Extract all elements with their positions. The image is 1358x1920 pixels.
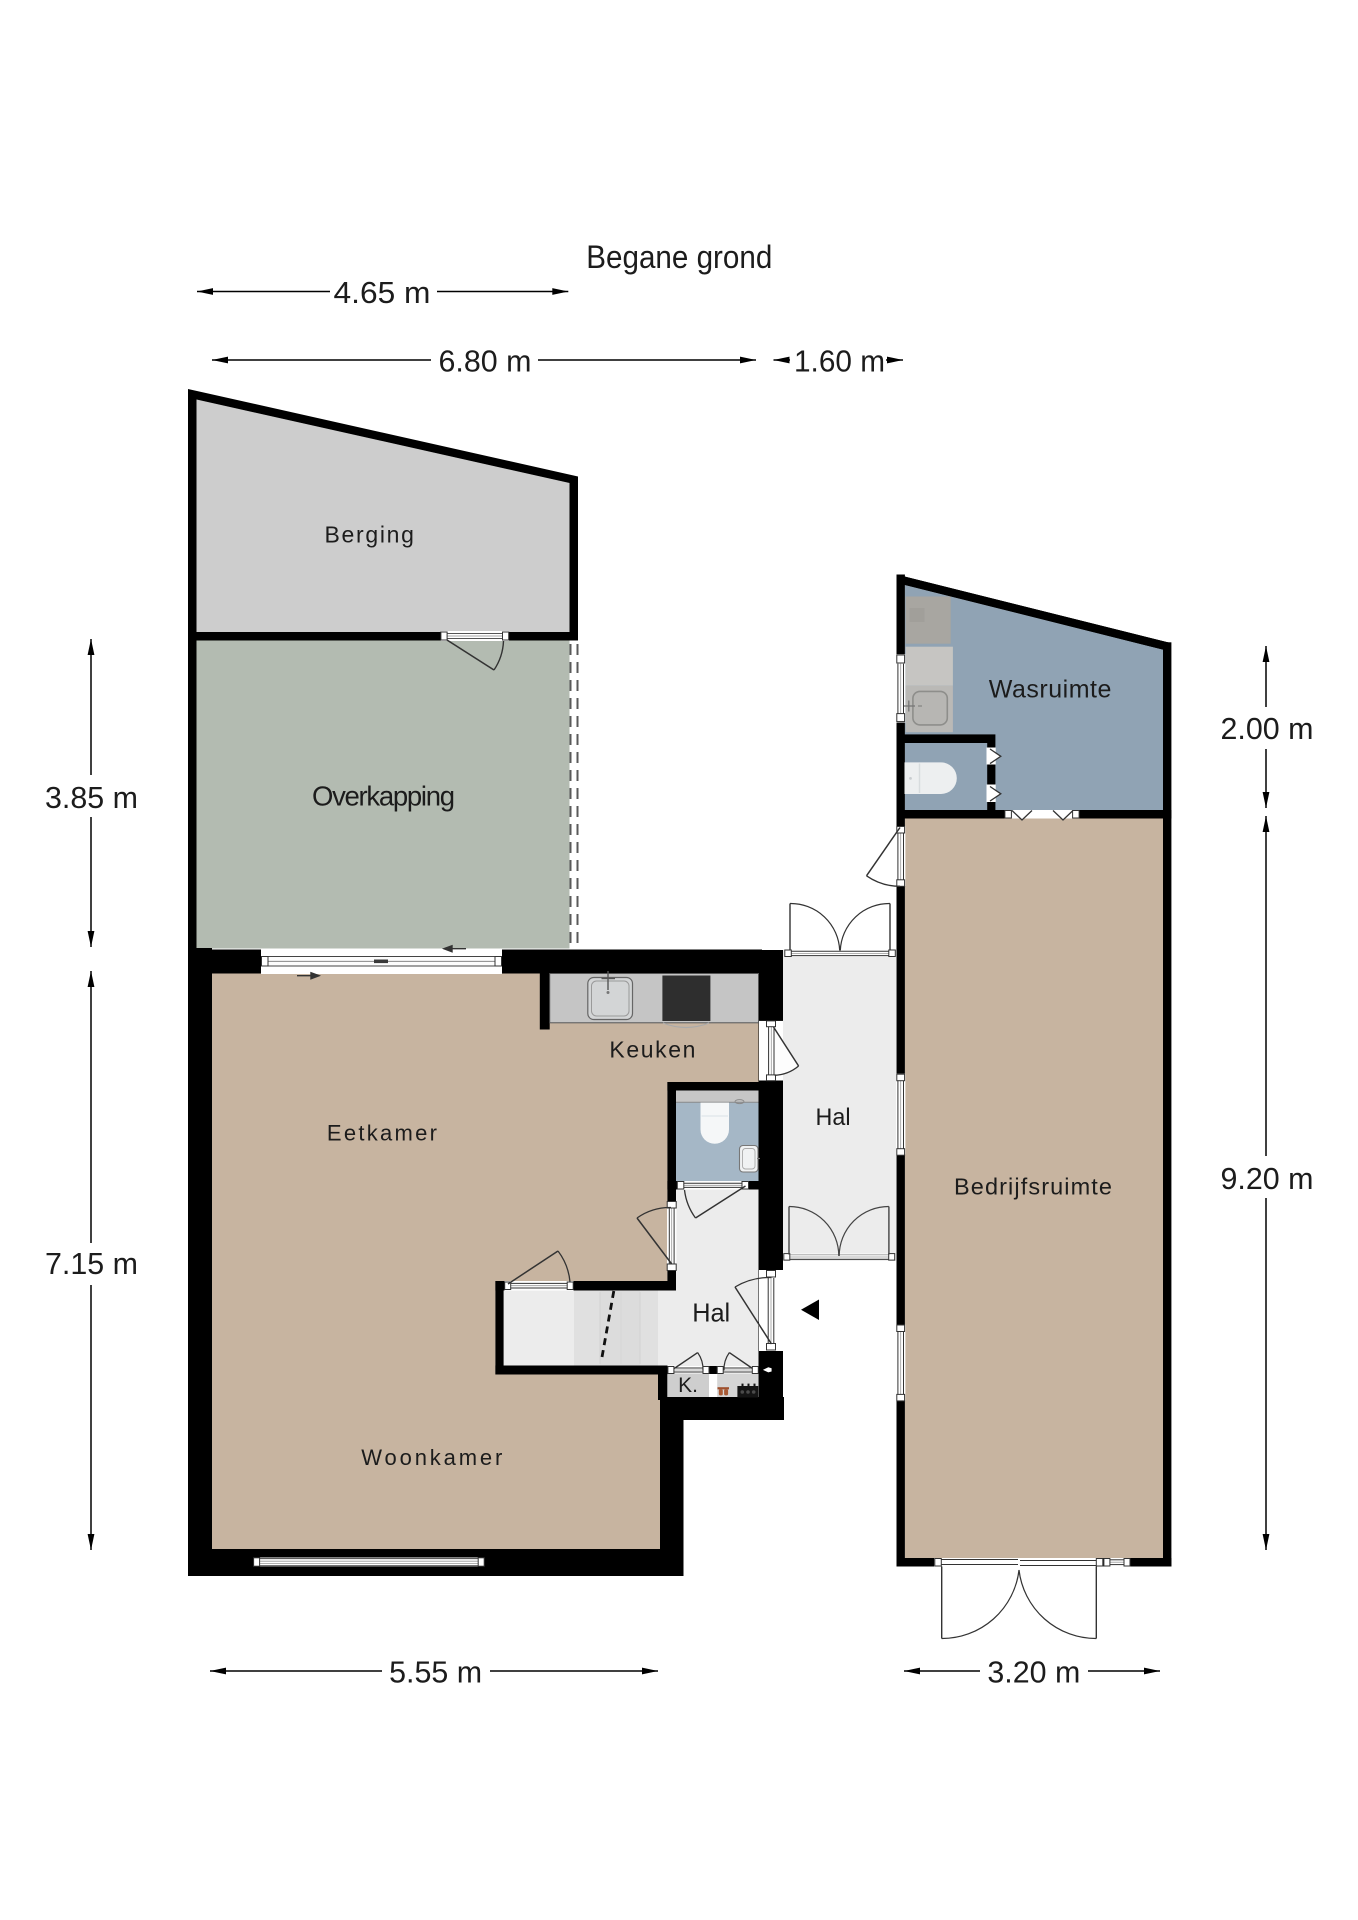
svg-text:1.60 m: 1.60 m [794,344,885,379]
svg-text:Berging: Berging [324,521,414,547]
svg-text:Hal: Hal [816,1104,851,1131]
svg-text:9.20 m: 9.20 m [1221,1161,1314,1196]
svg-text:Bedrijfsruimte: Bedrijfsruimte [954,1174,1112,1200]
svg-text:Keuken: Keuken [609,1037,695,1063]
svg-text:Overkapping: Overkapping [312,781,455,812]
svg-text:Eetkamer: Eetkamer [327,1121,437,1146]
svg-text:K.: K. [678,1374,698,1397]
svg-text:2.00 m: 2.00 m [1221,711,1314,746]
svg-text:3.20 m: 3.20 m [987,1655,1080,1690]
svg-text:3.85 m: 3.85 m [45,780,138,815]
svg-text:4.65 m: 4.65 m [334,275,431,310]
svg-text:6.80 m: 6.80 m [439,344,532,379]
svg-text:5.55 m: 5.55 m [389,1655,482,1690]
svg-text:Hal: Hal [692,1297,730,1327]
svg-text:7.15 m: 7.15 m [45,1246,138,1281]
svg-text:Begane grond: Begane grond [586,239,772,275]
svg-text:Wasruimte: Wasruimte [989,675,1112,703]
